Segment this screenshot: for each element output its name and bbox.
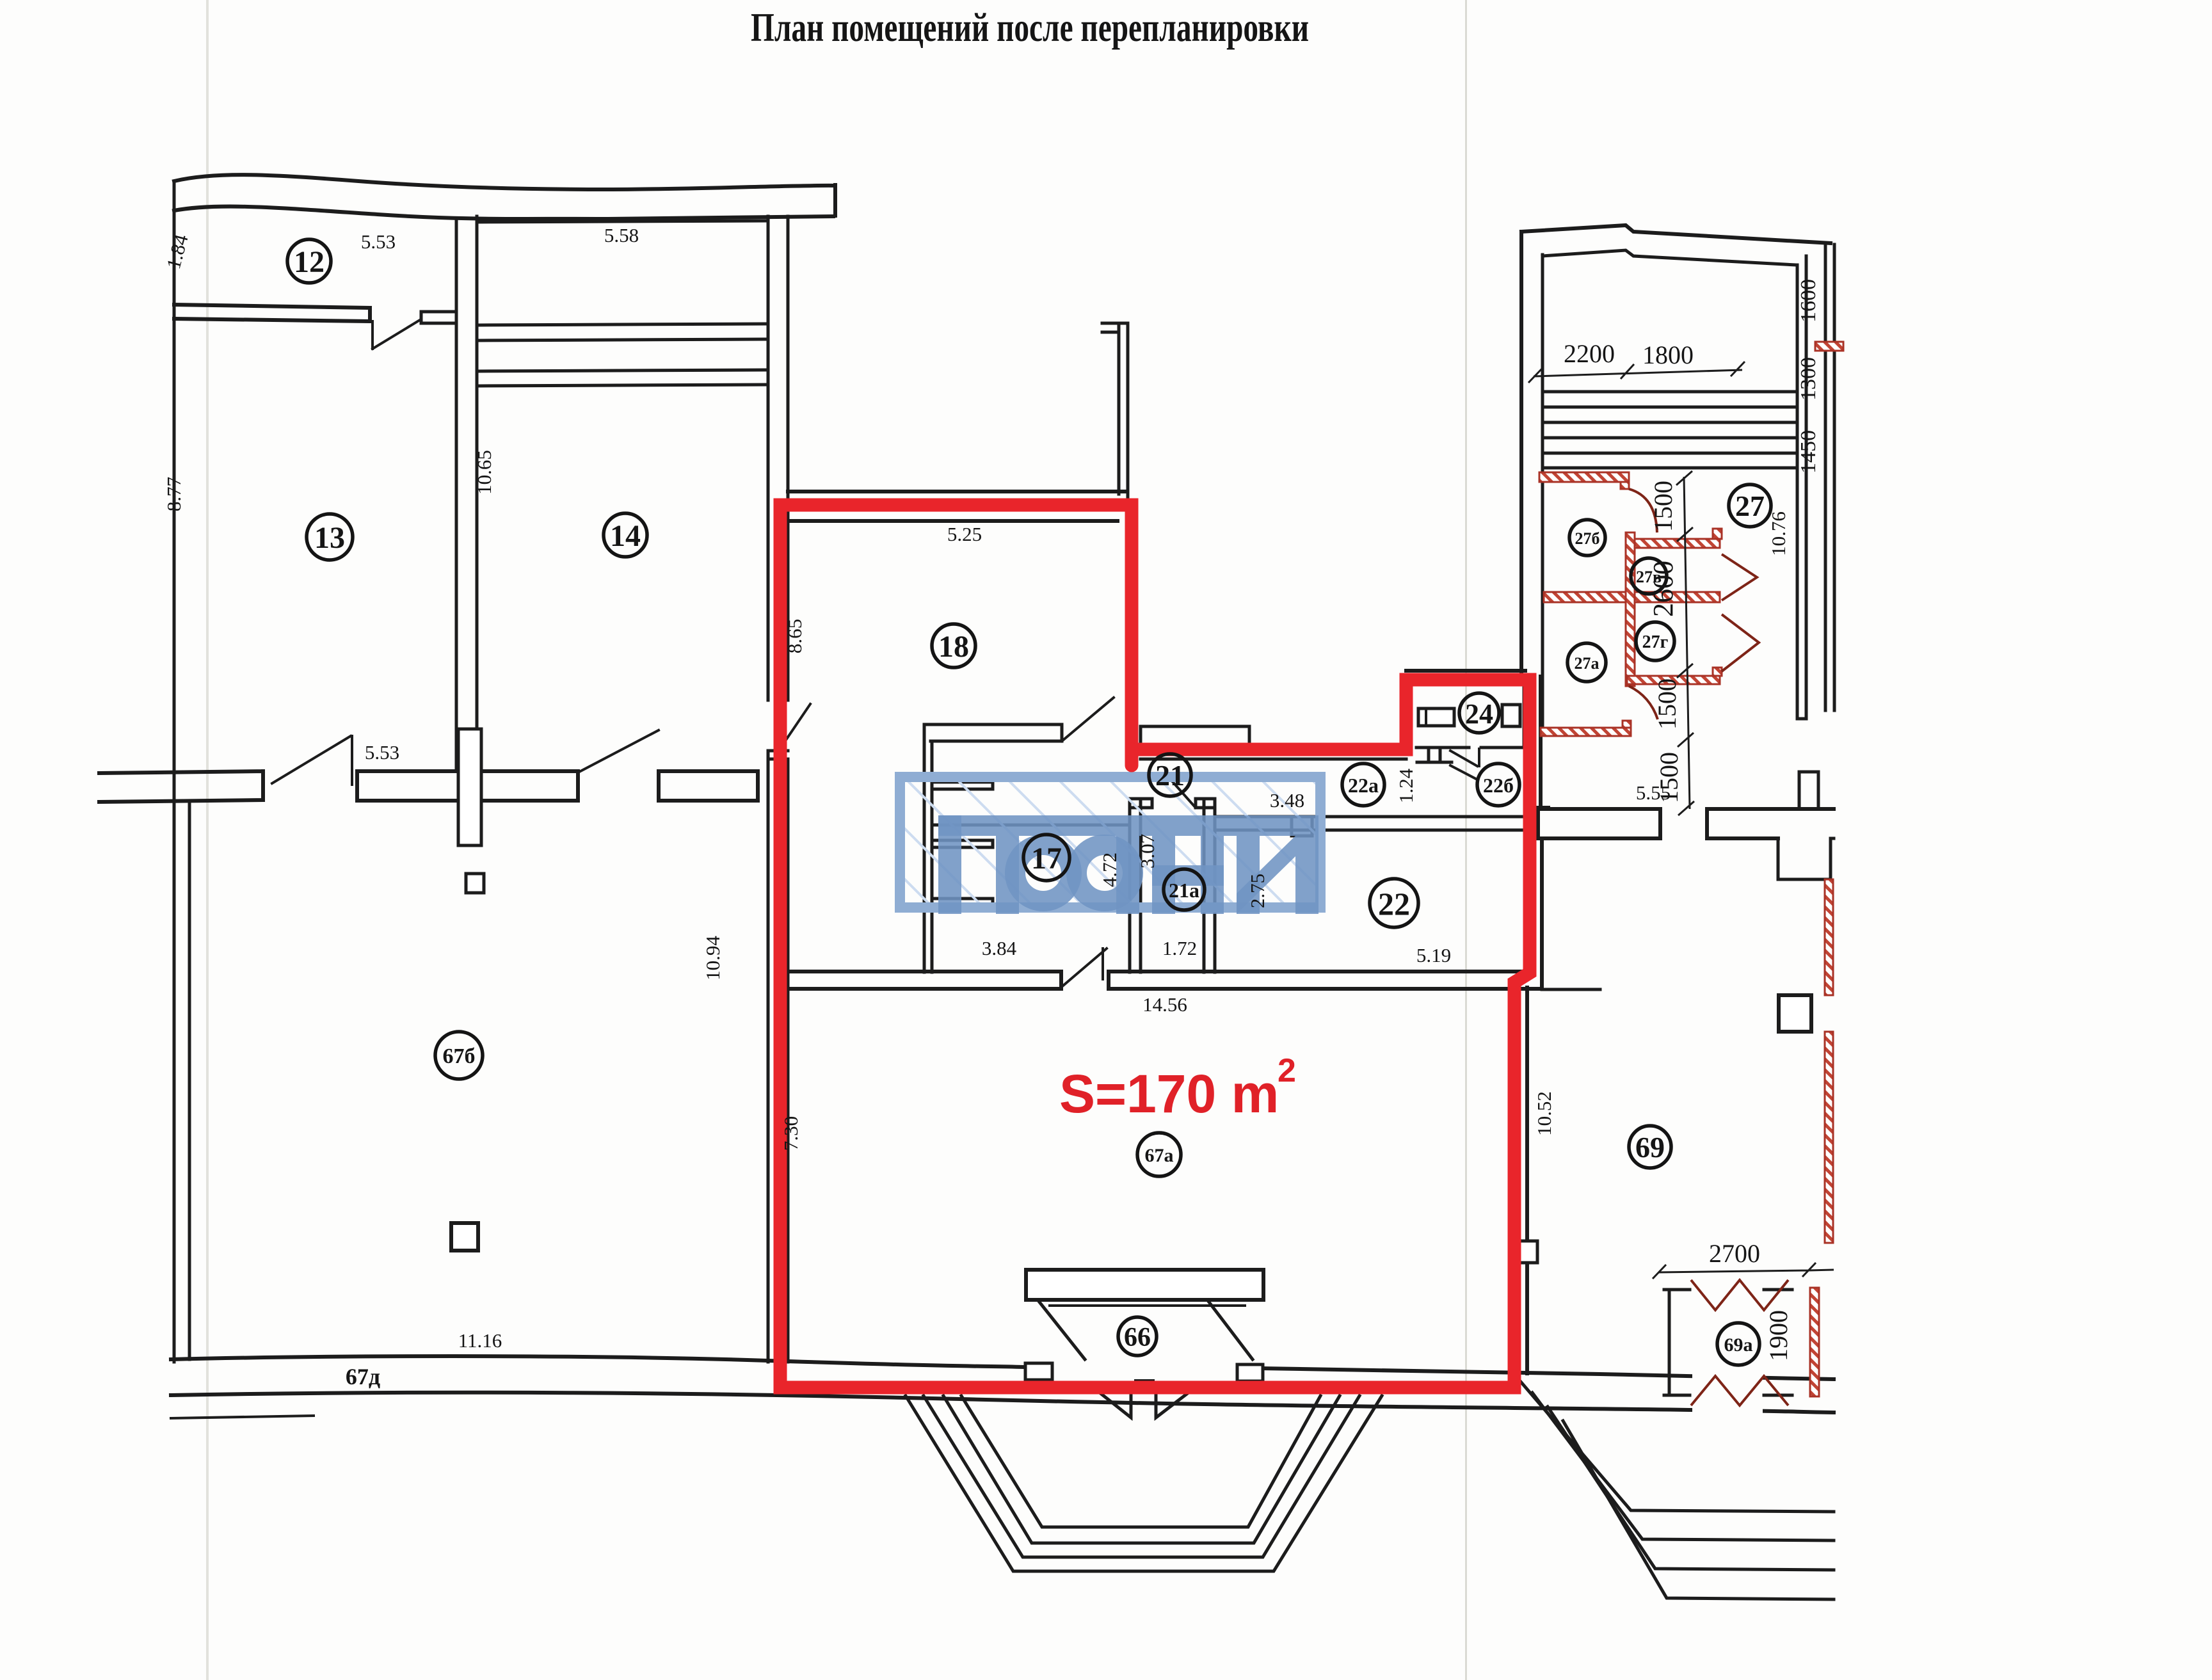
svg-text:67б: 67б — [443, 1044, 476, 1068]
svg-text:14: 14 — [610, 519, 641, 553]
svg-text:План помещений после переплани: План помещений после перепланировки — [751, 4, 1309, 50]
svg-text:5.53: 5.53 — [361, 230, 396, 253]
svg-text:27а: 27а — [1575, 654, 1599, 673]
svg-text:14.56: 14.56 — [1142, 993, 1187, 1016]
svg-text:69а: 69а — [1724, 1334, 1753, 1356]
svg-text:10.94: 10.94 — [701, 936, 724, 980]
svg-text:22б: 22б — [1483, 774, 1514, 797]
svg-text:11.16: 11.16 — [458, 1329, 502, 1352]
svg-text:27г: 27г — [1642, 632, 1669, 652]
svg-text:3.07: 3.07 — [1136, 834, 1158, 868]
svg-text:4.72: 4.72 — [1098, 852, 1121, 887]
svg-text:3.84: 3.84 — [982, 937, 1017, 959]
svg-text:13: 13 — [314, 521, 345, 555]
svg-text:1450: 1450 — [1797, 430, 1820, 474]
svg-text:2700: 2700 — [1709, 1239, 1760, 1268]
svg-text:10.65: 10.65 — [473, 450, 495, 495]
svg-text:8.65: 8.65 — [783, 619, 806, 653]
svg-text:27б: 27б — [1575, 529, 1600, 548]
svg-text:10.76: 10.76 — [1767, 511, 1790, 556]
svg-text:1500: 1500 — [1649, 481, 1678, 532]
svg-text:66: 66 — [1124, 1323, 1151, 1352]
svg-text:10.52: 10.52 — [1533, 1091, 1555, 1136]
svg-text:22: 22 — [1378, 886, 1410, 922]
svg-text:1.72: 1.72 — [1162, 937, 1197, 959]
svg-text:12: 12 — [294, 245, 325, 279]
svg-text:17: 17 — [1031, 842, 1062, 876]
svg-text:18: 18 — [938, 630, 969, 664]
svg-text:1500: 1500 — [1655, 752, 1683, 803]
svg-text:1600: 1600 — [1797, 279, 1820, 323]
svg-text:24: 24 — [1465, 698, 1493, 730]
svg-text:5.53: 5.53 — [365, 741, 399, 764]
svg-text:5.25: 5.25 — [947, 523, 982, 545]
svg-text:8.77: 8.77 — [163, 477, 185, 511]
svg-text:2: 2 — [1278, 1052, 1296, 1089]
svg-text:27: 27 — [1735, 490, 1765, 522]
svg-text:5.58: 5.58 — [604, 224, 639, 246]
svg-text:67а: 67а — [1145, 1145, 1174, 1166]
svg-text:22а: 22а — [1348, 774, 1379, 797]
svg-text:69: 69 — [1635, 1131, 1665, 1164]
svg-text:21а: 21а — [1169, 879, 1199, 902]
svg-text:67д: 67д — [346, 1364, 380, 1389]
svg-text:21: 21 — [1155, 759, 1185, 792]
svg-text:2200: 2200 — [1564, 339, 1615, 368]
svg-text:1300: 1300 — [1797, 357, 1820, 401]
svg-text:1800: 1800 — [1642, 340, 1694, 369]
svg-text:1500: 1500 — [1653, 678, 1681, 730]
svg-text:1.24: 1.24 — [1395, 768, 1417, 803]
svg-text:S=170 m: S=170 m — [1059, 1064, 1279, 1124]
svg-text:1900: 1900 — [1764, 1310, 1793, 1361]
svg-text:2.75: 2.75 — [1246, 874, 1269, 908]
svg-text:2600: 2600 — [1647, 561, 1679, 617]
svg-text:5.19: 5.19 — [1416, 944, 1451, 966]
svg-text:3.48: 3.48 — [1270, 789, 1304, 812]
svg-text:7.30: 7.30 — [780, 1116, 802, 1151]
